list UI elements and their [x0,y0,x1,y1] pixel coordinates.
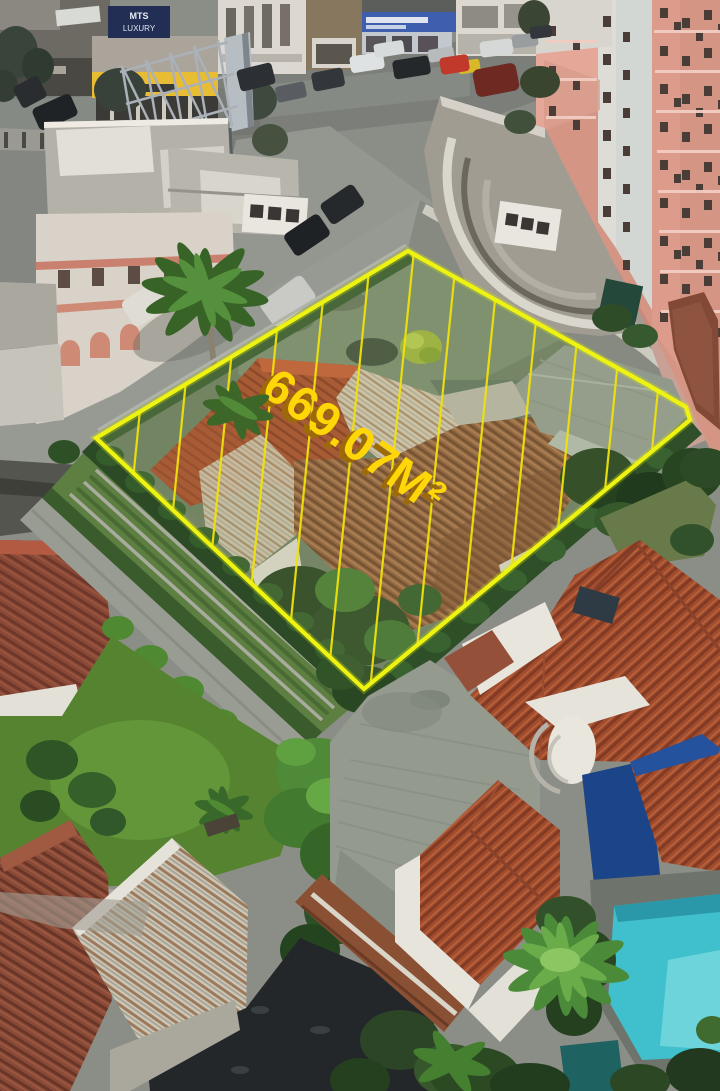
svg-text:LUXURY: LUXURY [123,24,156,33]
svg-text:MTS: MTS [130,11,149,21]
